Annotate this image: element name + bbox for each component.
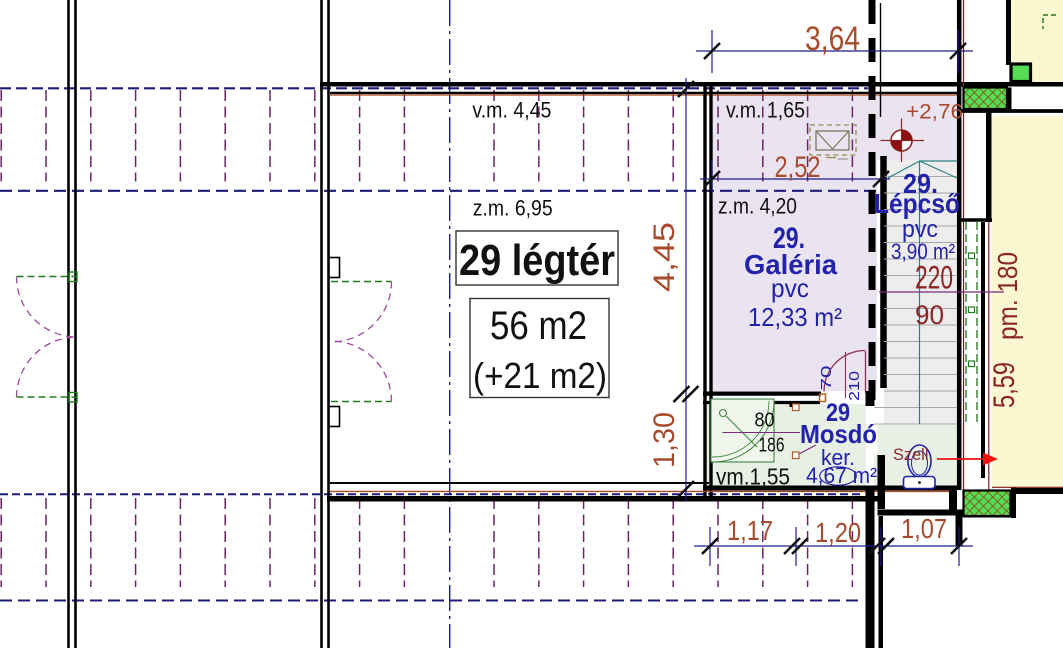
svg-text:80: 80 — [755, 409, 775, 432]
svg-text:70: 70 — [818, 366, 835, 391]
svg-text:pm. 180: pm. 180 — [992, 252, 1023, 340]
svg-text:v.m. 1,65: v.m. 1,65 — [726, 98, 805, 123]
svg-text:4,45: 4,45 — [648, 222, 681, 292]
svg-text:90: 90 — [915, 300, 944, 330]
svg-text:210: 210 — [846, 371, 863, 401]
svg-text:3,64: 3,64 — [805, 20, 860, 58]
svg-text:5,59: 5,59 — [988, 362, 1021, 408]
svg-text:2,52: 2,52 — [775, 151, 821, 184]
svg-text:1,30: 1,30 — [648, 412, 681, 468]
svg-text:v.m. 4,45: v.m. 4,45 — [472, 98, 551, 123]
svg-text:z.m. 4,20: z.m. 4,20 — [718, 194, 797, 219]
svg-text:+2,76: +2,76 — [906, 101, 963, 124]
svg-text:pvc: pvc — [771, 273, 809, 303]
svg-text:1,17: 1,17 — [727, 515, 773, 546]
svg-text:Lépcső: Lépcső — [874, 188, 960, 219]
svg-text:z.m. 6,95: z.m. 6,95 — [473, 196, 553, 221]
svg-text:1,20: 1,20 — [815, 517, 861, 548]
svg-text:vm.1,55: vm.1,55 — [716, 464, 790, 490]
svg-text:1,07: 1,07 — [901, 513, 947, 544]
svg-text:29 légtér: 29 légtér — [459, 236, 615, 285]
svg-text:(+21 m2): (+21 m2) — [473, 355, 607, 396]
svg-text:56 m2: 56 m2 — [490, 304, 587, 348]
svg-text:220: 220 — [915, 260, 953, 296]
svg-text:186: 186 — [759, 434, 785, 457]
svg-text:Szell.: Szell. — [893, 445, 933, 464]
svg-text:12,33 m²: 12,33 m² — [748, 302, 842, 332]
